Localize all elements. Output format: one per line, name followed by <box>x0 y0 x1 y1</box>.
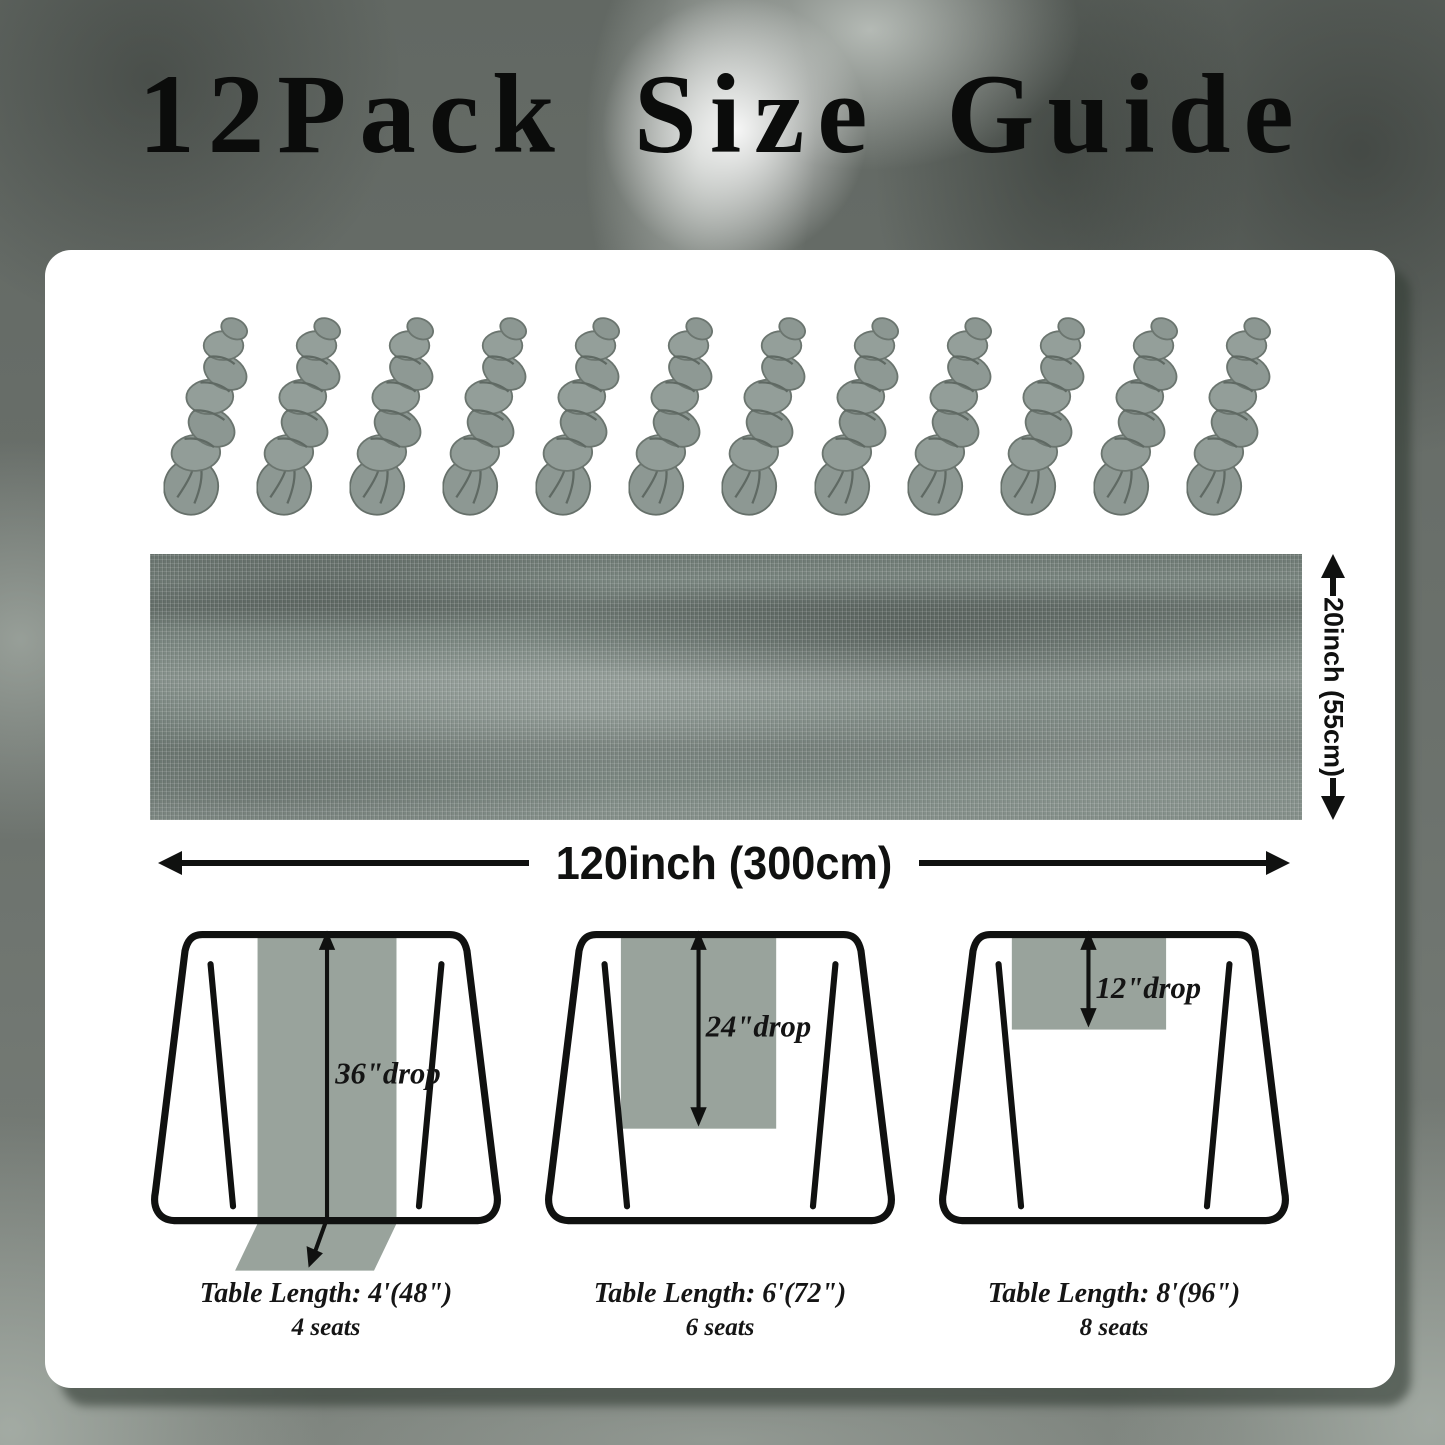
table-leg-line <box>1207 964 1229 1206</box>
fabric-skein-icon <box>350 308 440 526</box>
fabric-skein-icon <box>443 308 533 526</box>
arrow-left-icon <box>158 851 182 875</box>
table-diagrams-row: 36"drop Table Length: 4'(48") 4 seats 24… <box>45 918 1395 1345</box>
fabric-skein-icon <box>164 308 254 526</box>
drop-label: 12"drop <box>1096 971 1201 1005</box>
width-dimension: 120inch (300cm) <box>158 837 1290 889</box>
fabric-skein-icon <box>908 308 998 526</box>
arrow-up-icon <box>1321 554 1345 578</box>
table-seats-label: 8 seats <box>925 1312 1303 1345</box>
drop-label: 36"drop <box>334 1057 440 1091</box>
width-label: 120inch (300cm) <box>556 836 892 890</box>
fabric-skein-icon <box>1001 308 1091 526</box>
width-arrow-line <box>919 860 1266 866</box>
fabric-skein-icon <box>257 308 347 526</box>
table-seats-label: 6 seats <box>531 1312 909 1345</box>
height-arrow-line <box>1330 778 1336 796</box>
fabric-skein-icon <box>1094 308 1184 526</box>
table-8ft-illustration: 12"drop <box>925 918 1303 1276</box>
table-leg-line <box>813 964 835 1206</box>
fabric-skein-icon <box>536 308 626 526</box>
fabric-skein-icon <box>1187 308 1277 526</box>
table-diagram-4ft: 36"drop Table Length: 4'(48") 4 seats <box>137 918 515 1345</box>
width-arrow-line <box>182 860 529 866</box>
table-length-label: Table Length: 8'(96") <box>925 1276 1303 1312</box>
table-seats-label: 4 seats <box>137 1312 515 1345</box>
fabric-skein-icon <box>722 308 812 526</box>
skein-row <box>164 308 1277 526</box>
page-title: 12Pack Size Guide <box>0 44 1445 185</box>
table-4ft-illustration: 36"drop <box>137 918 515 1276</box>
size-guide-card: 20inch (55cm) 120inch (300cm) <box>45 250 1395 1388</box>
table-length-label: Table Length: 6'(72") <box>531 1276 909 1312</box>
table-diagram-8ft: 12"drop Table Length: 8'(96") 8 seats <box>925 918 1303 1345</box>
height-arrow-line <box>1330 578 1336 596</box>
table-diagram-6ft: 24"drop Table Length: 6'(72") 6 seats <box>531 918 909 1345</box>
arrow-right-icon <box>1266 851 1290 875</box>
height-dimension: 20inch (55cm) <box>1309 554 1357 820</box>
fabric-banner-image <box>150 554 1302 820</box>
drop-label: 24"drop <box>705 1010 811 1044</box>
fabric-skein-icon <box>629 308 719 526</box>
fabric-skein-icon <box>815 308 905 526</box>
table-length-label: Table Length: 4'(48") <box>137 1276 515 1312</box>
height-label: 20inch (55cm) <box>1318 597 1349 777</box>
table-leg-line <box>211 964 233 1206</box>
table-6ft-illustration: 24"drop <box>531 918 909 1276</box>
arrow-down-icon <box>1321 796 1345 820</box>
